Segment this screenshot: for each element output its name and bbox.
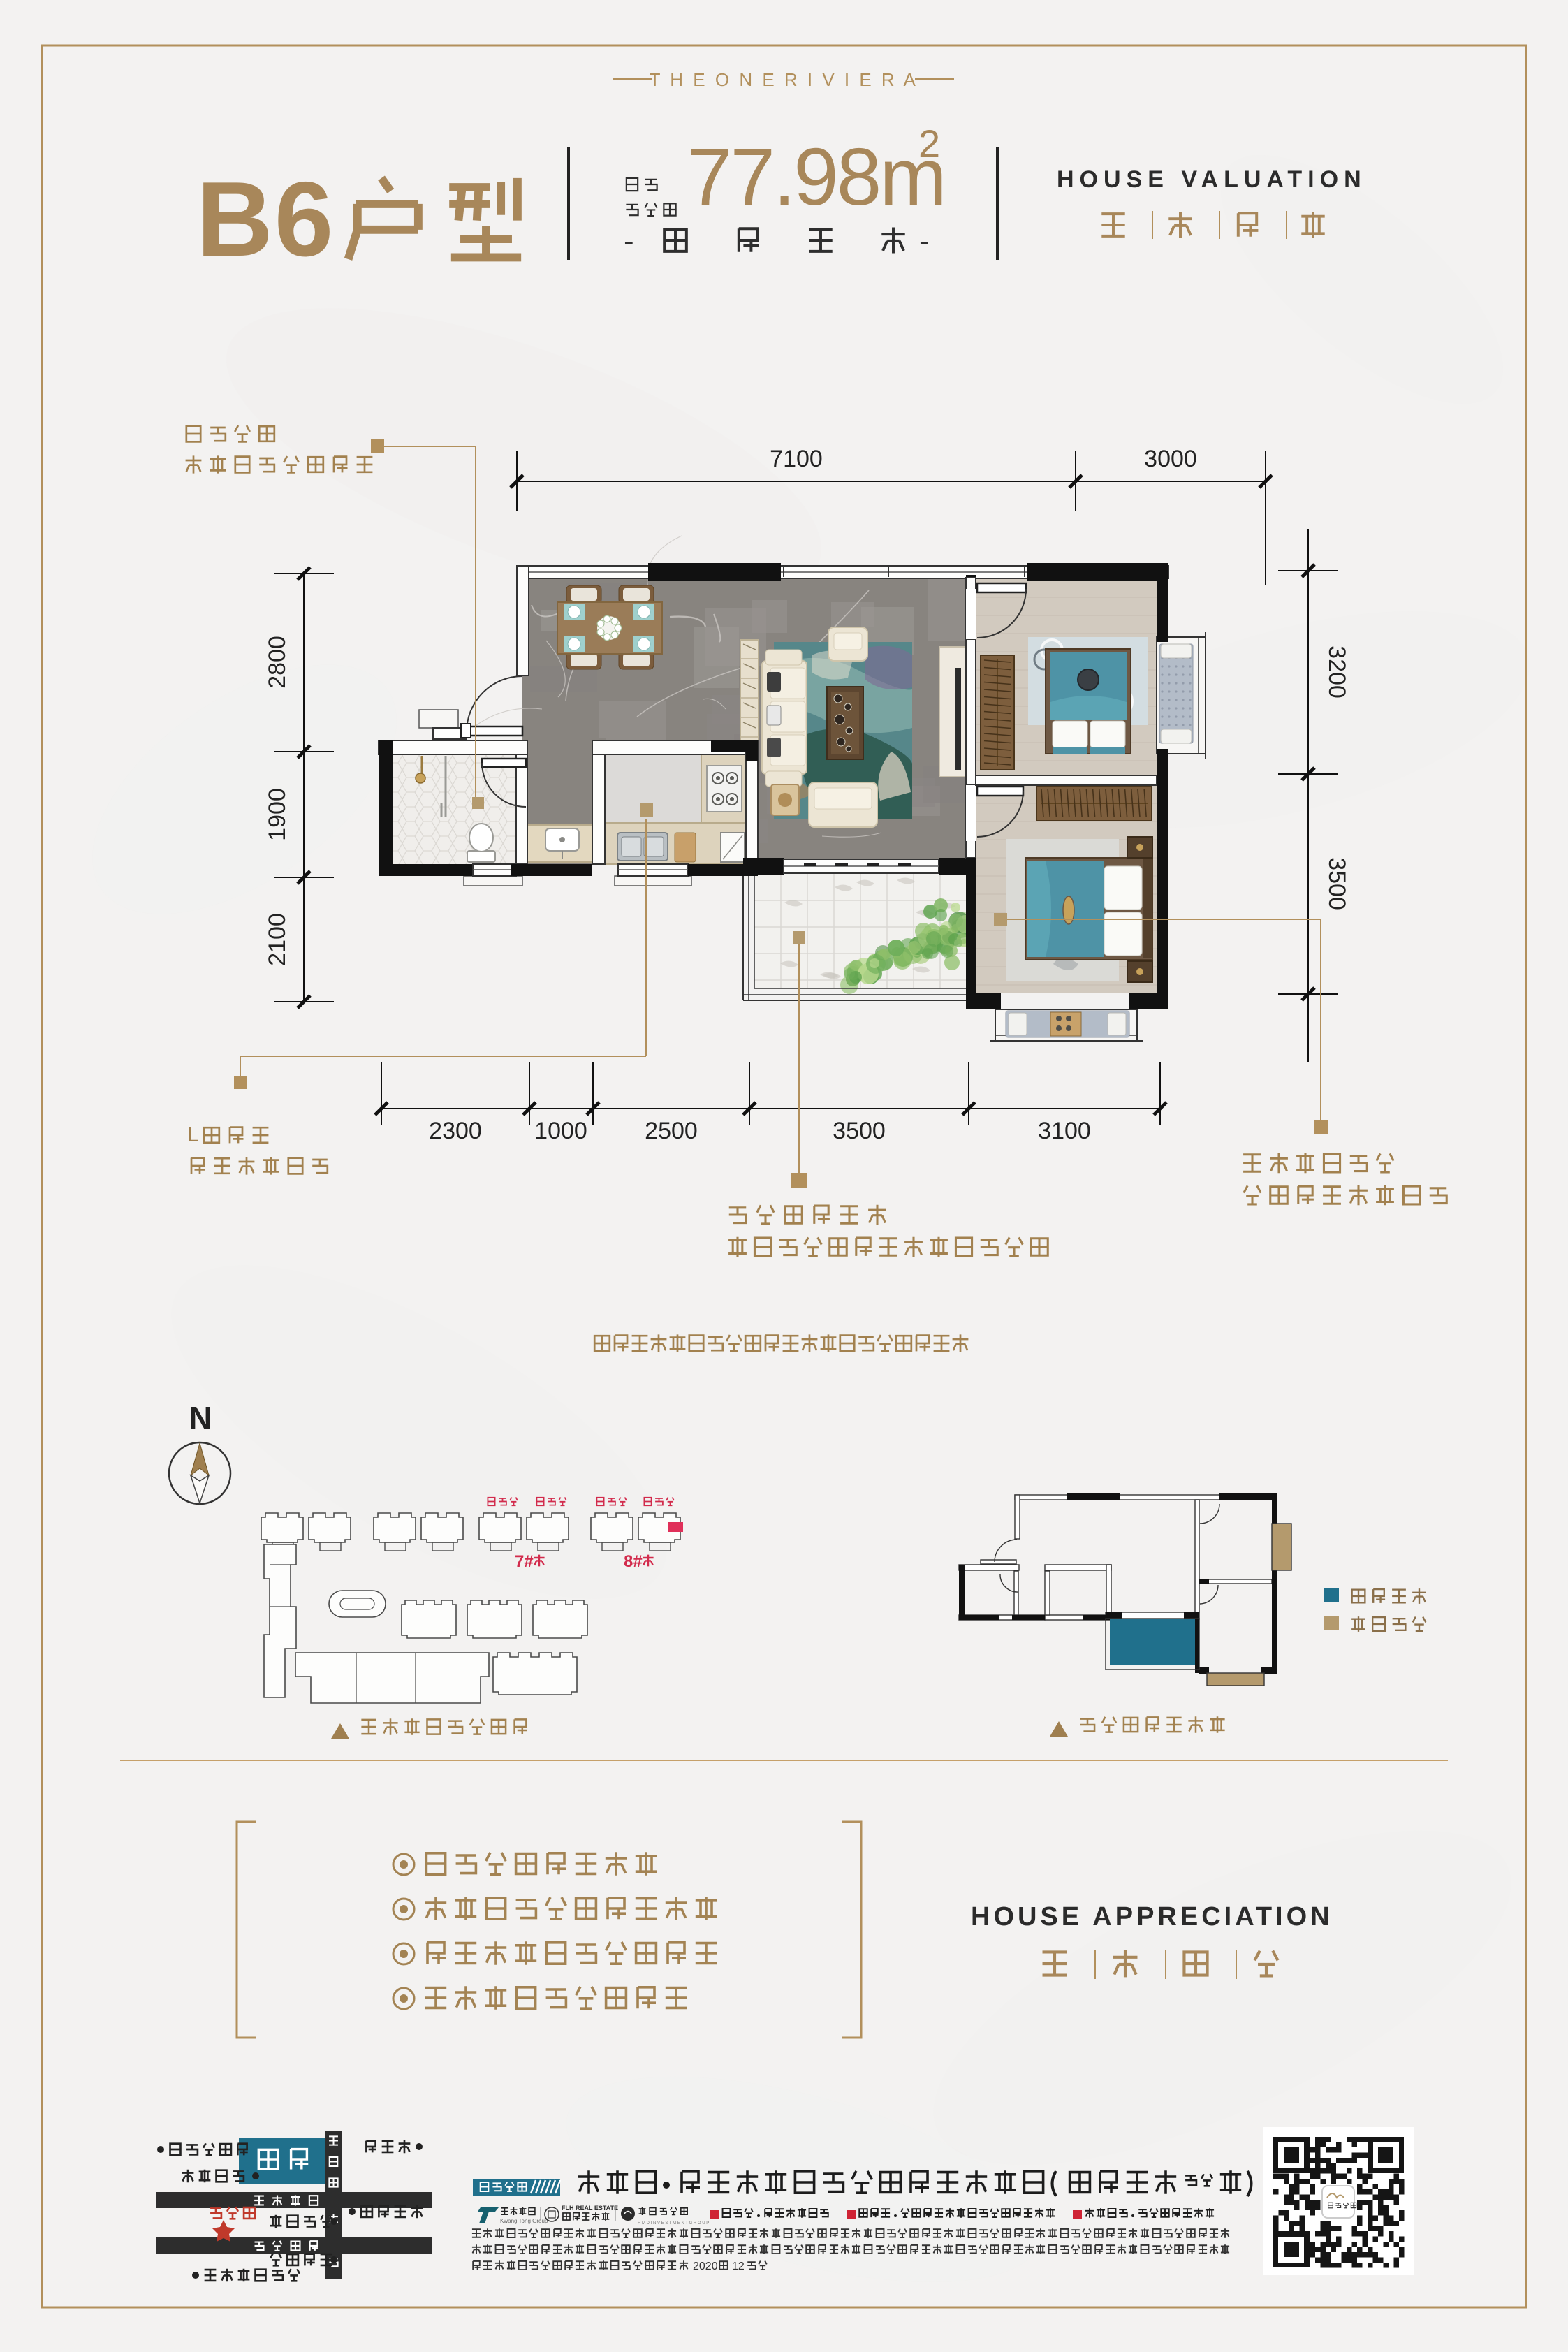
svg-text:-: - [919, 224, 930, 258]
svg-text:2: 2 [918, 122, 940, 166]
svg-text:2300: 2300 [429, 1118, 482, 1144]
svg-text:2800: 2800 [264, 636, 291, 689]
svg-text:L: L [187, 1123, 199, 1146]
svg-text:T H E O N E R I V I E R A: T H E O N E R I V I E R A [650, 69, 918, 90]
svg-text:12: 12 [732, 2260, 745, 2272]
svg-text:-: - [624, 224, 634, 258]
svg-text:3500: 3500 [833, 1118, 886, 1144]
svg-text:77.98m: 77.98m [687, 131, 945, 222]
svg-text:8#: 8# [624, 1552, 643, 1571]
svg-text:1900: 1900 [264, 788, 291, 841]
svg-text:HOUSE VALUATION: HOUSE VALUATION [1057, 166, 1367, 193]
svg-text:2500: 2500 [645, 1118, 698, 1144]
svg-text:N: N [189, 1400, 212, 1436]
svg-text:7#: 7# [515, 1552, 534, 1571]
svg-text:7100: 7100 [770, 446, 823, 472]
svg-text:3500: 3500 [1324, 857, 1350, 910]
svg-text:2100: 2100 [264, 913, 291, 966]
svg-text:3100: 3100 [1038, 1118, 1091, 1144]
svg-text:H M D I N V E S T M E N T G: H M D I N V E S T M E N T G R O U P [638, 2221, 709, 2226]
svg-text:1000: 1000 [534, 1118, 587, 1144]
svg-text:HOUSE APPRECIATION: HOUSE APPRECIATION [971, 1902, 1333, 1931]
svg-text:FLH REAL ESTATE: FLH REAL ESTATE [562, 2205, 618, 2212]
svg-text:3000: 3000 [1144, 446, 1197, 472]
svg-text:B6: B6 [196, 160, 335, 279]
svg-text:2020: 2020 [693, 2260, 718, 2272]
svg-text:3200: 3200 [1324, 645, 1350, 699]
